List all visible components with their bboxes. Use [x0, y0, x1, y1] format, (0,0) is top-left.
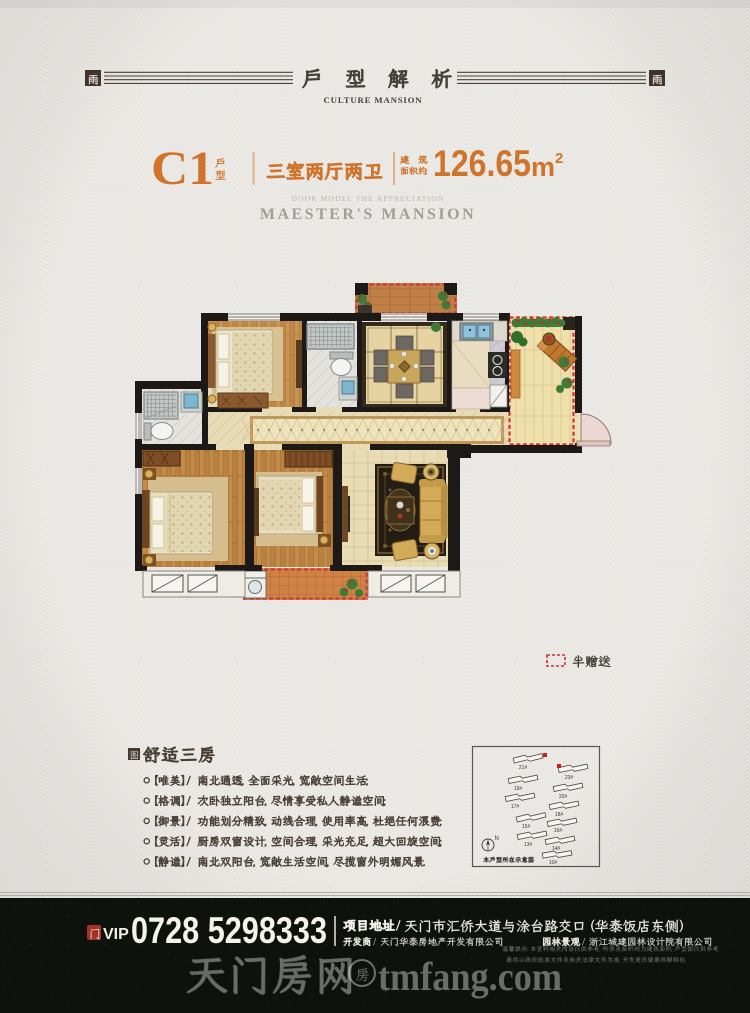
svg-text:21#: 21# [519, 765, 528, 771]
svg-text:13#: 13# [524, 842, 533, 848]
svg-text:VIP: VIP [103, 926, 129, 943]
svg-text:23#: 23# [565, 775, 574, 781]
svg-text:N: N [495, 836, 499, 842]
svg-text:0728 5298333: 0728 5298333 [131, 910, 327, 951]
svg-text:C1: C1 [151, 142, 214, 195]
svg-text:10#: 10# [549, 860, 558, 866]
svg-text:16#: 16# [554, 828, 563, 834]
svg-text:tmfang.com: tmfang.com [378, 954, 562, 999]
svg-text:MAESTER'S MANSION: MAESTER'S MANSION [260, 206, 476, 223]
svg-text:CULTURE MANSION: CULTURE MANSION [324, 95, 423, 105]
svg-text:18#: 18# [555, 812, 564, 818]
svg-text:15#: 15# [522, 824, 531, 830]
svg-text:19#: 19# [514, 786, 523, 792]
svg-text:20#: 20# [559, 794, 568, 800]
svg-text:17#: 17# [511, 804, 520, 810]
svg-text:DOOR MODEL THE APPRECIATION: DOOR MODEL THE APPRECIATION [291, 194, 444, 203]
